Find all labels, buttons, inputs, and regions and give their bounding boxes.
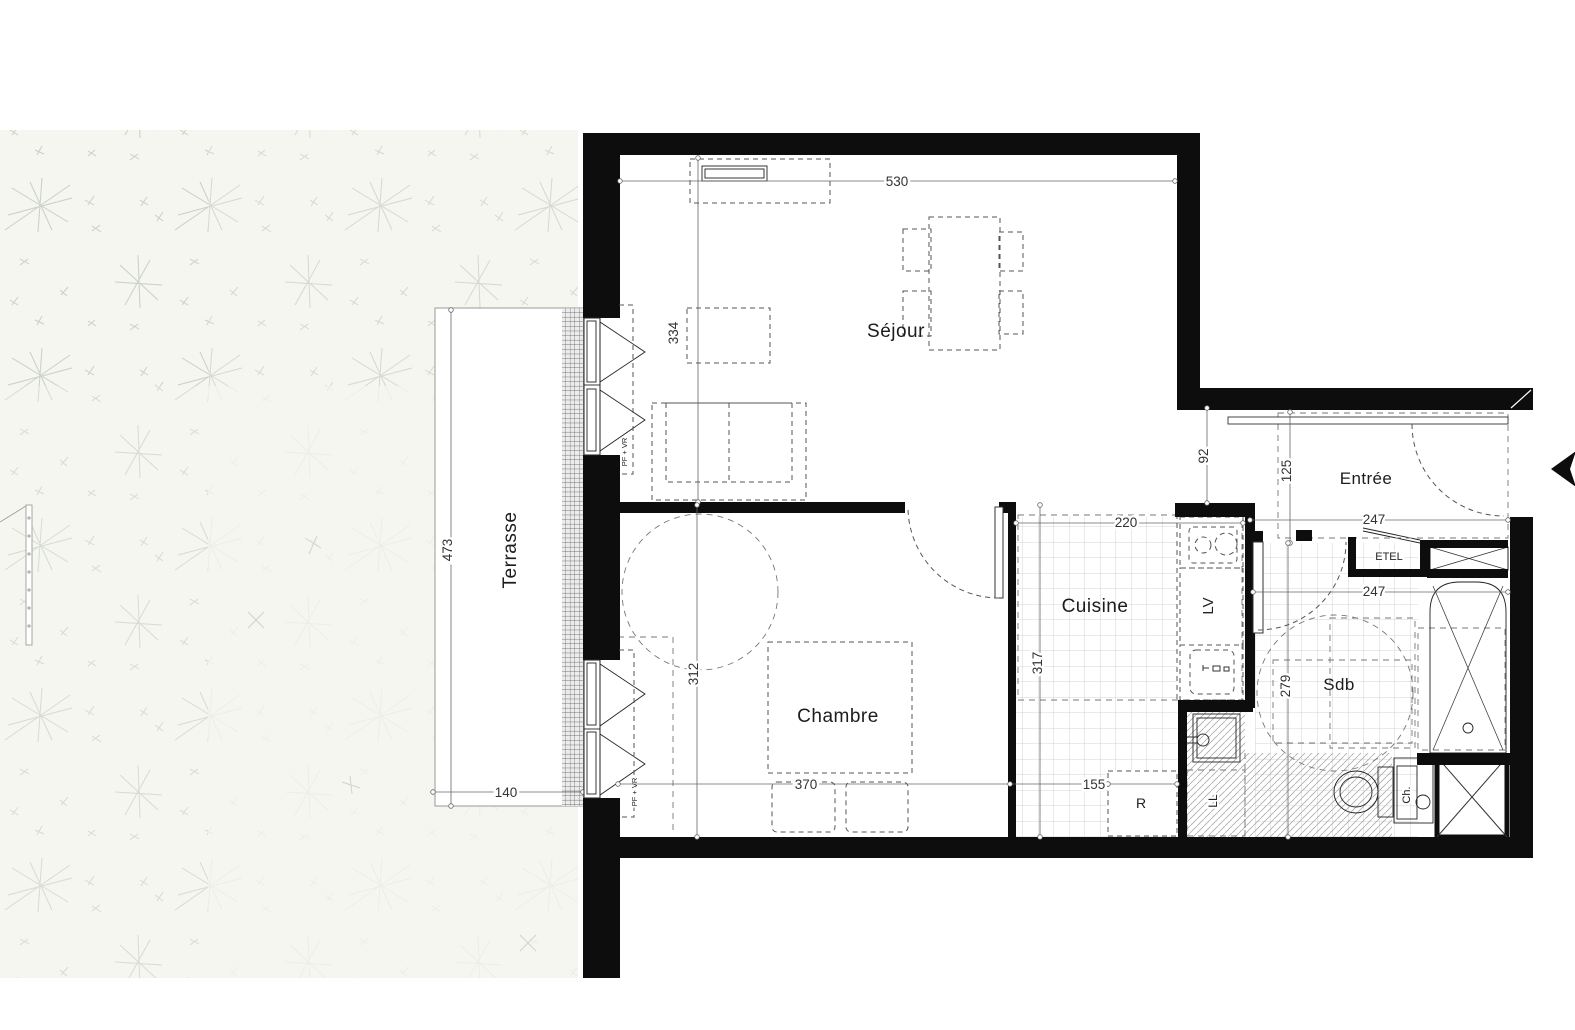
washing-machine-label: LL	[1206, 794, 1220, 808]
dim-chambre-height: 312	[686, 663, 701, 686]
dim-cuisine-width: 220	[1115, 515, 1138, 530]
dim-sejour-width: 530	[886, 174, 909, 189]
chambre-label: Chambre	[797, 706, 879, 727]
dishwasher-label: LV	[1200, 597, 1217, 614]
bed	[768, 642, 912, 832]
dim-chambre-width: 370	[795, 777, 818, 792]
dim-terrasse-width: 140	[495, 785, 518, 800]
coffee-table	[687, 308, 770, 363]
dim-sdb-height: 279	[1278, 675, 1293, 698]
technical-shaft	[1437, 757, 1507, 837]
entrance-arrow-icon	[1551, 451, 1575, 487]
entree-closet	[1430, 547, 1508, 570]
chair	[999, 291, 1023, 334]
cooktop-counter	[1180, 517, 1243, 568]
sofa	[652, 403, 806, 500]
window-type-label: PF + VR	[630, 777, 639, 806]
dim-entree-depth: 125	[1279, 460, 1294, 483]
sdb-label: Sdb	[1323, 675, 1354, 694]
burner	[1195, 537, 1211, 553]
burner	[1215, 533, 1237, 555]
floorplan-page: 473 140 Terrasse	[0, 0, 1575, 1030]
entrance-door-swing	[1412, 424, 1504, 516]
kitchen-sink	[1190, 650, 1234, 694]
chambre-furniture	[618, 514, 912, 833]
window-type-label: PF + VR	[620, 437, 629, 466]
etel-door	[1363, 528, 1420, 543]
entree-label: Entrée	[1340, 469, 1393, 488]
floor-finishes	[1016, 517, 1418, 837]
terrace: 473 140 Terrasse	[431, 308, 586, 809]
chair	[903, 229, 931, 271]
entrance-door-leaf	[1228, 417, 1508, 424]
floorplan-drawing: 473 140 Terrasse	[0, 0, 1575, 1030]
refrigerator-label: R	[1136, 795, 1146, 811]
chair	[999, 232, 1023, 271]
dim-terrasse-height: 473	[440, 539, 455, 562]
terrasse-label: Terrasse	[500, 512, 521, 589]
window-sejour: PF + VR	[584, 305, 645, 474]
dim-cuisine-height: 317	[1030, 652, 1045, 675]
tv	[702, 166, 767, 181]
dining-table	[929, 217, 1000, 350]
terrace-threshold-band	[562, 308, 583, 806]
water-heater-label: Ch.	[1401, 786, 1413, 803]
dim-sdb-width: 247	[1363, 584, 1386, 599]
sdb-door-leaf	[1253, 542, 1263, 633]
chambre-door-leaf	[995, 507, 1003, 598]
etel-label: ETEL	[1375, 551, 1403, 563]
dim-cuisine-width2: 155	[1083, 777, 1106, 792]
window-chambre: PF + VR	[584, 650, 645, 817]
sejour-label: Séjour	[867, 321, 925, 342]
cuisine-label: Cuisine	[1062, 596, 1129, 617]
corner-block	[1508, 388, 1533, 410]
turning-circle	[622, 514, 778, 670]
bathtub	[1430, 582, 1506, 753]
wc-zone-hatch	[1245, 753, 1392, 837]
dim-passage: 92	[1196, 448, 1211, 463]
chambre-door-swing	[908, 507, 999, 598]
dim-entree-width: 247	[1363, 512, 1386, 527]
sejour-furniture	[652, 159, 1023, 500]
dim-sejour-height: 334	[666, 321, 681, 344]
